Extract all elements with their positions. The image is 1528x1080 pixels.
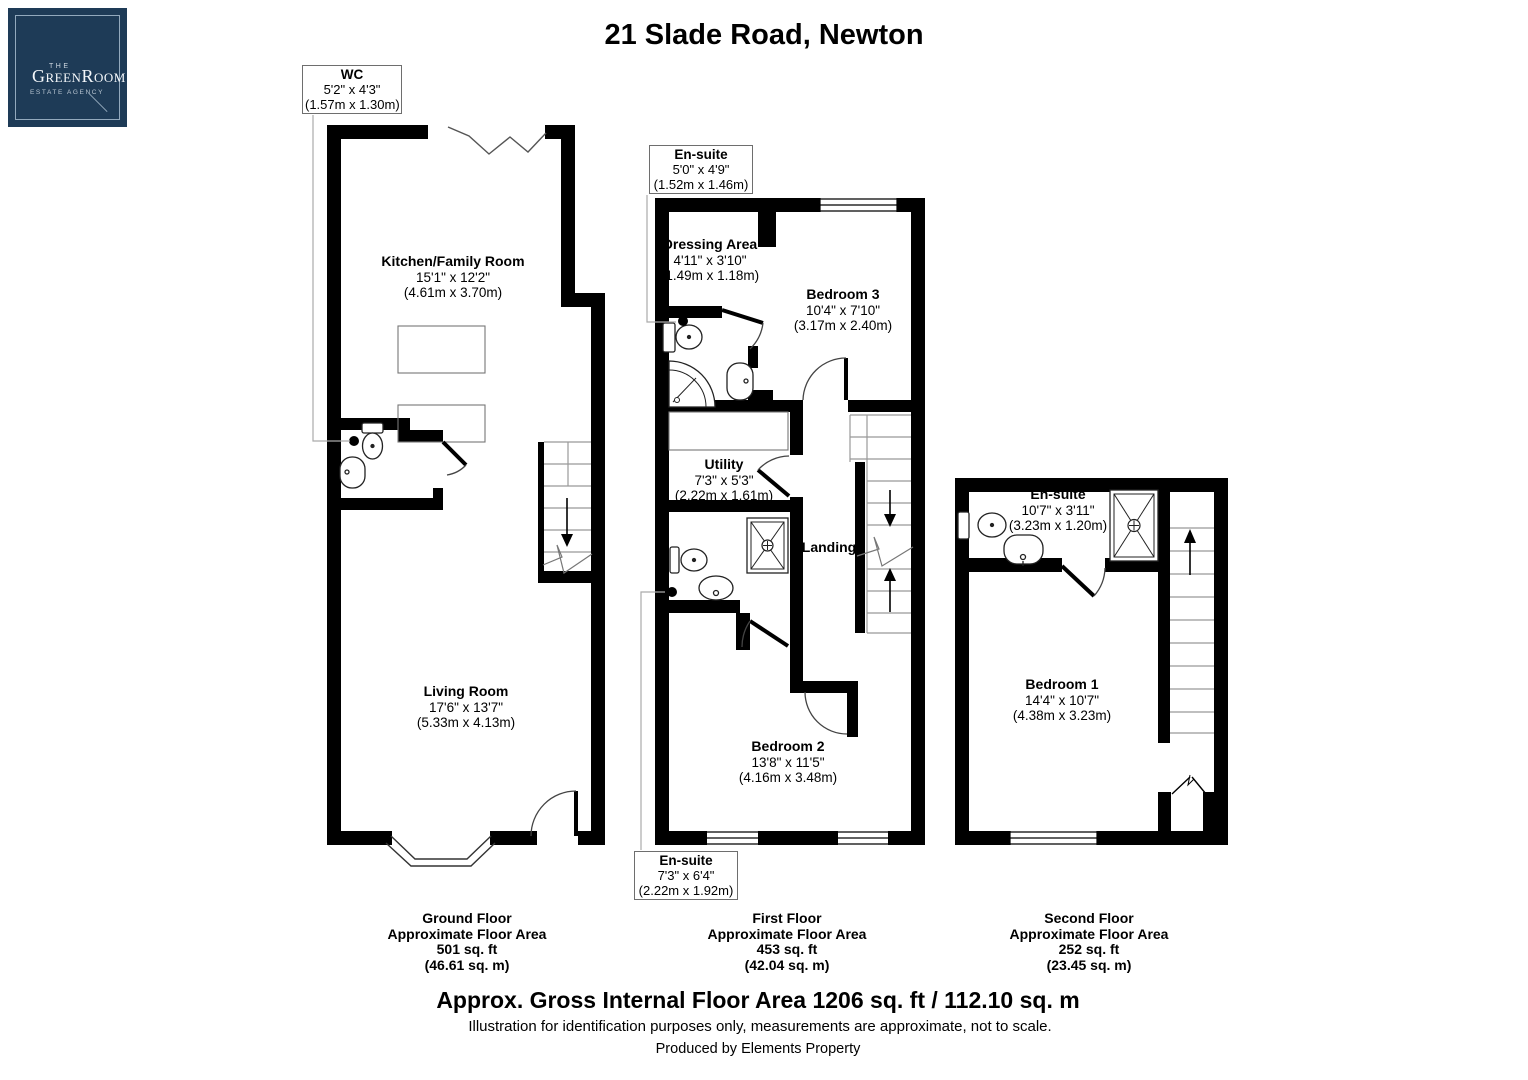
floor-area-caption: Approximate Floor Area — [1010, 927, 1169, 943]
room-dimensions-metric: (1.49m x 1.18m) — [661, 268, 759, 284]
room-dimensions-metric: (1.52m x 1.46m) — [652, 177, 750, 192]
second-floor-area-label: Second Floor Approximate Floor Area 252 … — [1010, 911, 1169, 973]
ensuite3-leader-dot — [678, 316, 688, 326]
room-dimensions-metric: (2.22m x 1.92m) — [637, 883, 735, 898]
floor-area-sqft: 501 sq. ft — [388, 942, 547, 958]
room-dimensions-imperial: 14'4" x 10'7" — [1013, 693, 1111, 709]
room-dimensions-metric: (2.22m x 1.61m) — [675, 488, 773, 504]
wc-door — [443, 442, 466, 475]
room-dimensions-imperial: 10'7" x 3'11" — [1009, 503, 1107, 519]
room-label-utility: Utility 7'3" x 5'3" (2.22m x 1.61m) — [675, 457, 773, 504]
floor-area-sqft: 252 sq. ft — [1010, 942, 1169, 958]
floor-area-caption: Approximate Floor Area — [708, 927, 867, 943]
room-dimensions-imperial: 5'2" x 4'3" — [305, 82, 399, 97]
room-dimensions-metric: (4.38m x 3.23m) — [1013, 708, 1111, 724]
room-label-ensuite-bed1: En-suite 10'7" x 3'11" (3.23m x 1.20m) — [1009, 487, 1107, 534]
room-dimensions-imperial: 10'4" x 7'10" — [794, 303, 892, 319]
floor-name: Second Floor — [1010, 911, 1169, 927]
room-label-landing: Landing — [802, 540, 856, 556]
kitchen-units — [398, 326, 485, 442]
wc-leader-dot — [349, 436, 359, 446]
room-dimensions-metric: (4.16m x 3.48m) — [739, 770, 837, 786]
bathroom-leader-dot — [667, 587, 677, 597]
room-label-living: Living Room 17'6" x 13'7" (5.33m x 4.13m… — [417, 684, 515, 731]
callout-ensuite-bed3: En-suite 5'0" x 4'9" (1.52m x 1.46m) — [649, 145, 753, 194]
room-name: En-suite — [637, 853, 735, 868]
bay-window — [386, 836, 495, 866]
bathroom-toilet-icon — [670, 547, 707, 573]
closet-doors — [1172, 775, 1206, 794]
kitchen-opening-zigzag — [448, 127, 546, 154]
ensuite3-sink-icon — [727, 363, 753, 400]
gross-area-text: Approx. Gross Internal Floor Area 1206 s… — [436, 987, 1079, 1014]
room-dimensions-imperial: 7'3" x 5'3" — [675, 473, 773, 489]
floor-area-sqm: (46.61 sq. m) — [388, 958, 547, 974]
ground-floor-area-label: Ground Floor Approximate Floor Area 501 … — [388, 911, 547, 973]
wc-toilet-icon — [362, 423, 383, 459]
floor-area-sqft: 453 sq. ft — [708, 942, 867, 958]
floorplan-page: THE GreenRoom ESTATE AGENCY 21 Slade Roa… — [0, 0, 1528, 1080]
room-name: Kitchen/Family Room — [381, 254, 524, 270]
room-label-bedroom3: Bedroom 3 10'4" x 7'10" (3.17m x 2.40m) — [794, 287, 892, 334]
producer-text: Produced by Elements Property — [656, 1041, 861, 1057]
room-name: En-suite — [652, 147, 750, 162]
floor-area-sqm: (23.45 sq. m) — [1010, 958, 1169, 974]
ensuite1-sink-icon — [1004, 535, 1043, 566]
room-dimensions-metric: (3.23m x 1.20m) — [1009, 518, 1107, 534]
room-dimensions-metric: (4.61m x 3.70m) — [381, 285, 524, 301]
ground-floor-walls — [327, 125, 605, 845]
room-dimensions-imperial: 5'0" x 4'9" — [652, 162, 750, 177]
floor-name: Ground Floor — [388, 911, 547, 927]
ensuite1-door — [1062, 566, 1105, 596]
room-name: Bedroom 2 — [739, 739, 837, 755]
ground-stairs-icon — [543, 442, 592, 573]
ensuite1-toilet-icon — [958, 512, 1006, 539]
room-name: Dressing Area — [661, 237, 759, 253]
ensuite3-toilet-icon — [663, 323, 702, 352]
floor-area-sqm: (42.04 sq. m) — [708, 958, 867, 974]
room-name: Utility — [675, 457, 773, 473]
room-name: Bedroom 1 — [1013, 677, 1111, 693]
room-dimensions-imperial: 4'11" x 3'10" — [661, 253, 759, 269]
room-dimensions-imperial: 17'6" x 13'7" — [417, 700, 515, 716]
room-dimensions-imperial: 15'1" x 12'2" — [381, 270, 524, 286]
disclaimer-text: Illustration for identification purposes… — [468, 1018, 1051, 1035]
room-name: Living Room — [417, 684, 515, 700]
room-name: WC — [305, 67, 399, 82]
ensuite3-corner-shower-icon — [669, 361, 715, 407]
room-label-bedroom1: Bedroom 1 14'4" x 10'7" (4.38m x 3.23m) — [1013, 677, 1111, 724]
room-dimensions-imperial: 13'8" x 11'5" — [739, 755, 837, 771]
callout-ensuite-bed2: En-suite 7'3" x 6'4" (2.22m x 1.92m) — [634, 851, 738, 900]
living-room-door — [531, 791, 576, 836]
bathroom-shower-icon — [747, 518, 788, 573]
callout-wc: WC 5'2" x 4'3" (1.57m x 1.30m) — [302, 65, 402, 114]
floor-name: First Floor — [708, 911, 867, 927]
ensuite3-door — [722, 310, 763, 349]
room-label-dressing: Dressing Area 4'11" x 3'10" (1.49m x 1.1… — [661, 237, 759, 284]
floor-area-caption: Approximate Floor Area — [388, 927, 547, 943]
room-name: Landing — [802, 540, 856, 556]
bedroom2-door — [805, 692, 847, 734]
ground-floor-plan — [313, 115, 605, 866]
first-floor-area-label: First Floor Approximate Floor Area 453 s… — [708, 911, 867, 973]
utility-counter — [669, 412, 788, 450]
room-name: En-suite — [1009, 487, 1107, 503]
room-dimensions-imperial: 7'3" x 6'4" — [637, 868, 735, 883]
ensuite1-shower-icon — [1110, 490, 1158, 561]
room-label-kitchen: Kitchen/Family Room 15'1" x 12'2" (4.61m… — [381, 254, 524, 301]
second-floor-window — [1010, 831, 1097, 845]
wc-sink-icon — [340, 457, 365, 488]
room-dimensions-metric: (3.17m x 2.40m) — [794, 318, 892, 334]
room-dimensions-metric: (5.33m x 4.13m) — [417, 715, 515, 731]
bathroom-sink-icon — [699, 576, 733, 600]
bedroom3-door — [803, 358, 846, 400]
room-label-bedroom2: Bedroom 2 13'8" x 11'5" (4.16m x 3.48m) — [739, 739, 837, 786]
room-dimensions-metric: (1.57m x 1.30m) — [305, 97, 399, 112]
room-name: Bedroom 3 — [794, 287, 892, 303]
second-floor-stairs-icon — [1170, 528, 1214, 733]
